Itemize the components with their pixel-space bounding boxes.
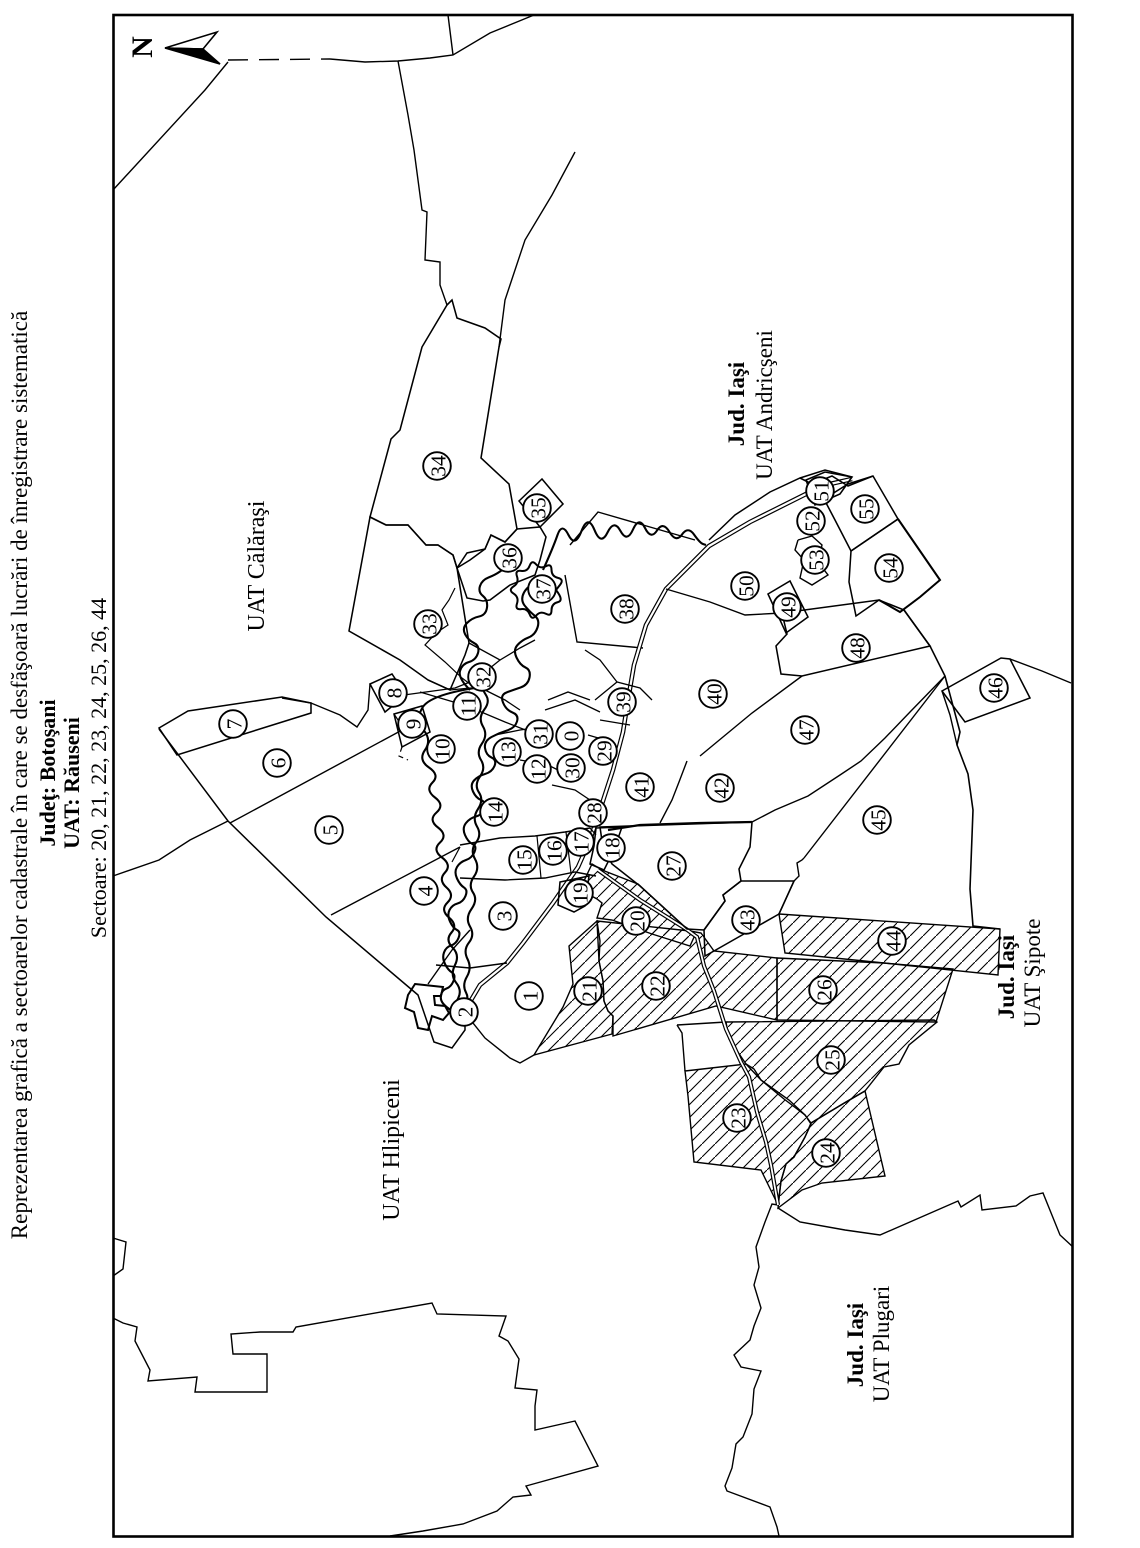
svg-text:30: 30 [561,757,585,779]
svg-text:UAT Călăraşi: UAT Călăraşi [244,500,270,631]
svg-text:11: 11 [457,696,481,717]
svg-text:0: 0 [560,731,584,742]
svg-text:44: 44 [882,930,906,952]
svg-text:36: 36 [498,547,522,569]
svg-text:32: 32 [472,666,496,688]
svg-text:14: 14 [484,801,508,823]
svg-text:17: 17 [570,831,594,853]
svg-text:20: 20 [626,910,650,932]
svg-text:9: 9 [402,719,426,730]
svg-text:Jud. Iaşi: Jud. Iaşi [994,934,1019,1019]
svg-text:1: 1 [519,991,543,1002]
svg-text:45: 45 [867,809,891,831]
svg-text:15: 15 [513,849,537,871]
svg-text:3: 3 [493,911,517,922]
svg-text:43: 43 [736,909,760,931]
svg-text:Judeţ: Botoşani: Judeţ: Botoşani [35,699,60,846]
svg-text:31: 31 [529,723,553,745]
svg-text:16: 16 [543,840,567,862]
svg-text:53: 53 [805,549,829,571]
svg-text:UAT Şipote: UAT Şipote [1020,919,1045,1028]
svg-text:41: 41 [630,776,654,798]
svg-text:4: 4 [414,885,438,896]
svg-text:N: N [126,36,159,58]
svg-text:54: 54 [879,557,903,579]
svg-text:23: 23 [727,1107,751,1129]
svg-text:18: 18 [601,837,625,859]
svg-text:6: 6 [267,757,291,768]
svg-text:50: 50 [735,575,759,597]
svg-text:UAT: Răuseni: UAT: Răuseni [59,717,84,849]
svg-text:34: 34 [427,455,451,477]
svg-text:24: 24 [816,1142,840,1164]
svg-text:35: 35 [527,497,551,519]
svg-text:12: 12 [527,758,551,780]
svg-text:UAT Plugari: UAT Plugari [869,1286,894,1403]
svg-text:25: 25 [821,1049,845,1071]
svg-text:46: 46 [984,677,1008,699]
svg-text:47: 47 [795,719,819,741]
svg-text:38: 38 [615,598,639,620]
svg-text:37: 37 [532,578,556,600]
svg-text:39: 39 [612,691,636,713]
svg-text:5: 5 [319,825,343,836]
svg-text:10: 10 [431,738,455,760]
svg-text:19: 19 [569,882,593,904]
svg-text:33: 33 [418,613,442,635]
svg-text:Reprezentarea grafică a sectoa: Reprezentarea grafică a sectoarelor cada… [7,311,32,1239]
svg-text:8: 8 [383,688,407,699]
svg-text:48: 48 [846,637,870,659]
svg-text:55: 55 [855,498,879,520]
svg-text:22: 22 [646,975,670,997]
svg-text:21: 21 [578,980,602,1002]
svg-text:Jud. Iaşi: Jud. Iaşi [724,361,749,446]
svg-text:Jud. Iaşi: Jud. Iaşi [843,1302,868,1387]
svg-text:13: 13 [497,741,521,763]
svg-text:42: 42 [710,777,734,799]
svg-text:UAT Andricşeni: UAT Andricşeni [752,330,777,480]
svg-text:26: 26 [813,979,837,1001]
svg-text:49: 49 [777,596,801,618]
svg-text:Sectoare: 20, 21, 22, 23, 24,: Sectoare: 20, 21, 22, 23, 24, 25, 26, 44 [86,598,111,938]
svg-text:7: 7 [223,718,247,729]
svg-text:29: 29 [593,740,617,762]
svg-text:28: 28 [583,802,607,824]
svg-text:51: 51 [810,480,834,502]
svg-text:UAT Hlipiceni: UAT Hlipiceni [379,1079,405,1221]
svg-text:27: 27 [662,855,686,877]
svg-text:40: 40 [703,683,727,705]
svg-text:2: 2 [454,1007,478,1018]
svg-text:52: 52 [801,510,825,532]
